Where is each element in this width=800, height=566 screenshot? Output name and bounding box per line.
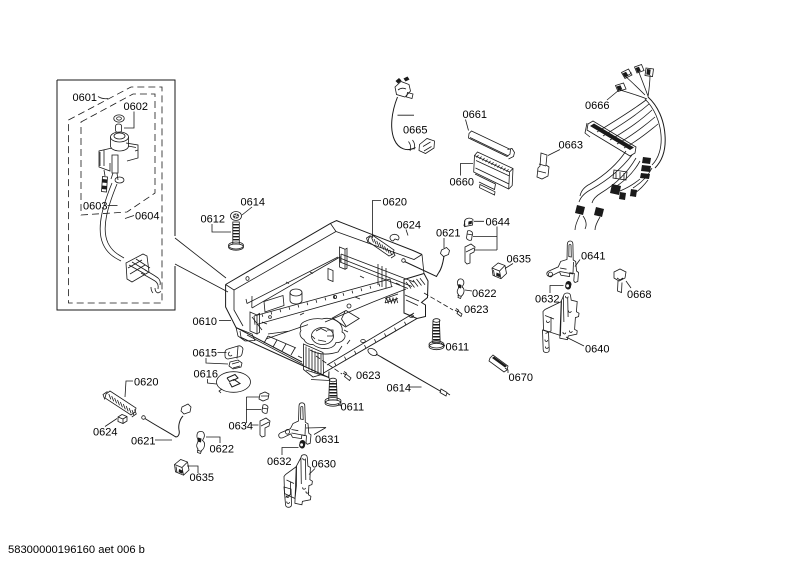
svg-text:0663: 0663 [559,140,583,152]
svg-text:0612: 0612 [201,214,225,226]
svg-text:0611: 0611 [446,342,470,354]
svg-text:0644: 0644 [486,217,510,229]
svg-text:0623: 0623 [356,370,380,382]
svg-text:0641: 0641 [581,251,605,263]
svg-text:0634: 0634 [229,421,253,433]
svg-text:0624: 0624 [397,220,421,232]
svg-text:0635: 0635 [507,254,531,266]
svg-text:0614: 0614 [387,383,411,395]
svg-text:0665: 0665 [403,125,427,137]
svg-text:0660: 0660 [450,177,474,189]
svg-text:0670: 0670 [509,372,533,384]
svg-text:0635: 0635 [190,472,214,484]
svg-text:0601: 0601 [73,92,97,104]
svg-text:0611: 0611 [341,402,365,414]
svg-text:0640: 0640 [585,344,609,356]
svg-text:0668: 0668 [627,289,651,301]
svg-text:0620: 0620 [134,377,158,389]
svg-text:0610: 0610 [193,316,217,328]
svg-text:0631: 0631 [315,434,339,446]
svg-text:0614: 0614 [241,197,265,209]
svg-text:0632: 0632 [535,294,559,306]
svg-text:0620: 0620 [383,197,407,209]
svg-text:0632: 0632 [267,456,291,468]
svg-text:0621: 0621 [436,228,460,240]
svg-text:0622: 0622 [210,444,234,456]
svg-text:0604: 0604 [135,211,159,223]
svg-text:0666: 0666 [585,100,609,112]
svg-text:58300000196160 aet 006 b: 58300000196160 aet 006 b [8,544,145,556]
svg-text:0615: 0615 [193,348,217,360]
svg-text:0602: 0602 [124,101,148,113]
svg-text:0624: 0624 [93,427,117,439]
svg-text:0623: 0623 [464,304,488,316]
svg-text:0616: 0616 [194,369,218,381]
svg-text:0621: 0621 [131,436,155,448]
svg-text:0622: 0622 [472,288,496,300]
svg-text:0661: 0661 [463,109,487,121]
